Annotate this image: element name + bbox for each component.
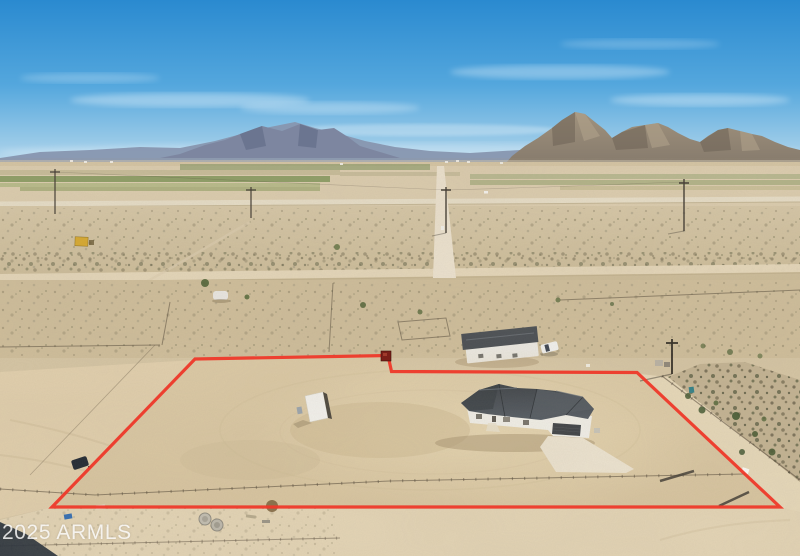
bin-highlight: [383, 353, 387, 356]
mottle-texture: [0, 158, 800, 556]
cloud-wisp: [560, 39, 720, 49]
cloud-wisp: [20, 73, 160, 83]
photo-canvas: [0, 0, 800, 556]
watermark: 2025 ARMLS: [2, 521, 132, 545]
cloud-wisp: [240, 102, 420, 114]
cloud-wisp: [450, 65, 670, 79]
cloud-wisp: [610, 94, 790, 106]
aerial-photo: 2025 ARMLS: [0, 0, 800, 556]
